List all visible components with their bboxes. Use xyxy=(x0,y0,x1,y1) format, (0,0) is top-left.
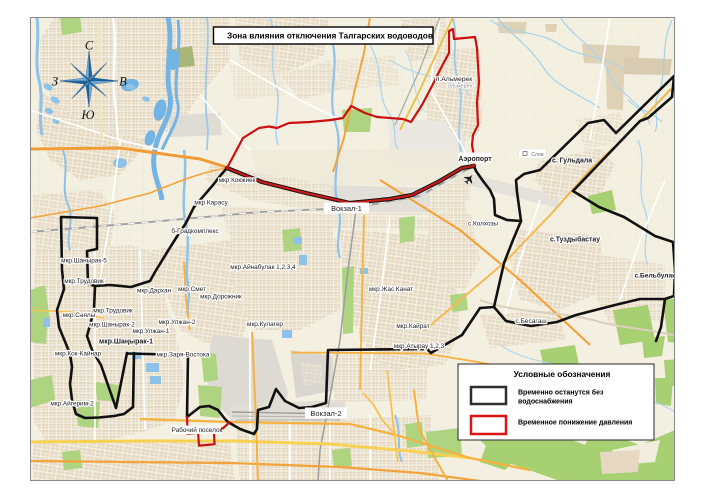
svg-text:мкр.Шанырак-5: мкр.Шанырак-5 xyxy=(61,258,107,265)
svg-text:с.Бельбулак: с.Бельбулак xyxy=(635,272,677,280)
svg-text:п.Альмерек: п.Альмерек xyxy=(436,76,473,83)
svg-text:мкр.Трудовик: мкр.Трудовик xyxy=(93,308,133,315)
svg-text:мкр.Улжан-1: мкр.Улжан-1 xyxy=(133,328,170,335)
svg-text:В: В xyxy=(119,75,127,89)
svg-text:мкр.Шаңырак-1: мкр.Шаңырак-1 xyxy=(99,339,153,346)
svg-text:Аэропорт: Аэропорт xyxy=(458,156,492,163)
svg-text:мкр.Шанырак-2: мкр.Шанырак-2 xyxy=(89,322,135,329)
svg-text:мкр.Трудовик: мкр.Трудовик xyxy=(64,278,104,285)
svg-text:мкр Кокжиек: мкр Кокжиек xyxy=(219,177,256,184)
svg-text:Вокзал-2: Вокзал-2 xyxy=(310,409,341,418)
svg-text:мкр.Кок-Кайнар: мкр.Кок-Кайнар xyxy=(55,350,102,358)
svg-text:с.Колхозы: с.Колхозы xyxy=(468,221,498,228)
svg-text:с.Бесагаш: с.Бесагаш xyxy=(515,318,546,325)
svg-text:б-Градкомплекс: б-Градкомплекс xyxy=(171,227,219,235)
svg-text:мкр.Заря-Востока: мкр.Заря-Востока xyxy=(157,352,210,359)
svg-text:альмерек: альмерек xyxy=(448,84,473,90)
svg-text:мкр.Кайрат: мкр.Кайрат xyxy=(396,322,429,330)
svg-text:мкр.Дорожник: мкр.Дорожник xyxy=(200,294,242,301)
svg-text:С: С xyxy=(85,39,94,53)
svg-text:мкр.Сәялы: мкр.Сәялы xyxy=(63,312,96,319)
svg-text:мкр.Кулагер: мкр.Кулагер xyxy=(247,321,283,328)
svg-text:Вокзал-1: Вокзал-1 xyxy=(331,204,362,213)
svg-text:Зона влияния отключения Талгар: Зона влияния отключения Талгарских водов… xyxy=(227,30,433,40)
svg-text:мкр.Улжан-2: мкр.Улжан-2 xyxy=(159,319,196,326)
svg-text:мкр Карасу: мкр Карасу xyxy=(194,200,228,207)
svg-text:мкр.Айнабулак 1,2,3,4: мкр.Айнабулак 1,2,3,4 xyxy=(230,263,296,271)
svg-text:Временное понижение давления: Временное понижение давления xyxy=(518,420,632,427)
svg-text:З: З xyxy=(52,75,58,89)
svg-text:Временно останутся без: Временно останутся без xyxy=(518,389,604,397)
svg-text:Рабочий поселок: Рабочий поселок xyxy=(172,426,223,434)
svg-text:мкр.Айгерим-2: мкр.Айгерим-2 xyxy=(50,400,94,408)
svg-text:с.Туздыбастау: с.Туздыбастау xyxy=(550,236,600,244)
svg-text:Ю: Ю xyxy=(81,108,95,122)
svg-text:мкр.Дархан: мкр.Дархан xyxy=(137,288,172,295)
svg-text:с. Гульдала: с. Гульдала xyxy=(552,158,592,165)
svg-text:мкр.Смет: мкр.Смет xyxy=(178,286,206,293)
svg-text:Условные обозначения: Условные обозначения xyxy=(514,369,611,379)
svg-text:мкр.Жас Канат: мкр.Жас Канат xyxy=(369,286,413,293)
svg-text:водоснабжения: водоснабжения xyxy=(518,398,573,406)
svg-text:Слои: Слои xyxy=(531,152,543,158)
svg-text:мкр.Атырау 1,2,3: мкр.Атырау 1,2,3 xyxy=(394,343,445,350)
